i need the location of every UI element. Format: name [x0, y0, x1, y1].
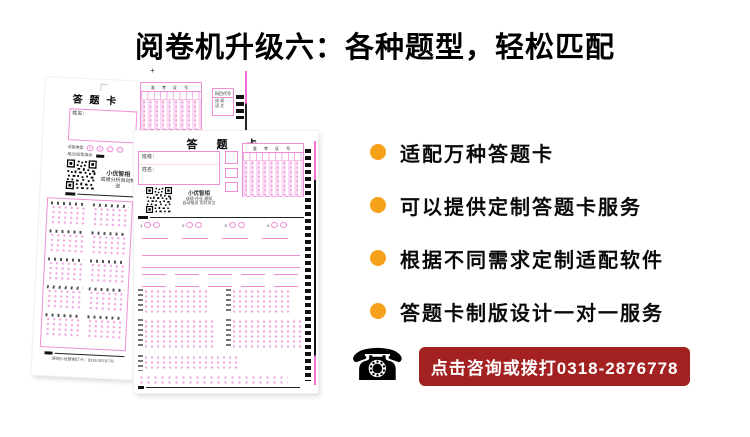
sheet-title: 答 题 卡: [45, 89, 147, 109]
bubble-block: [46, 285, 125, 313]
digit-write-row: [243, 153, 303, 161]
feature-text: 答题卡制版设计一对一服务: [400, 297, 664, 326]
fill-in-row: [142, 267, 298, 275]
option-bubble-b: B: [96, 146, 103, 152]
exam-number-label: 准 考 证 号: [243, 144, 303, 153]
bullet-dot-icon: [370, 144, 386, 160]
choice-group-row: [138, 375, 288, 385]
bullet-dot-icon: [370, 197, 386, 213]
bubble-block: [138, 355, 238, 371]
timing-mark: [65, 192, 75, 195]
contact-row: ☎ 点击咨询或拨打0318-2876778: [350, 344, 690, 388]
fill-in-row: [142, 279, 298, 287]
bullet-dot-icon: [370, 250, 386, 266]
subject-code-label: 科目代号: [213, 89, 233, 98]
promo-canvas: 阅卷机升级六：各种题型，轻松匹配 答 题 卡 姓名： 试卷类型 A B C D …: [0, 0, 750, 437]
option-bubble-c: C: [106, 146, 113, 152]
true-false-row: 1 2 3 4: [140, 222, 287, 228]
pencil-note-row: 用2B铅笔填涂: [67, 152, 104, 158]
name-box: 姓名：: [68, 108, 137, 143]
rule-line: [150, 217, 304, 218]
qr-code-icon: [66, 159, 97, 190]
consult-banner-button[interactable]: 点击咨询或拨打0318-2876778: [419, 347, 691, 386]
answer-sheet-main: 答 题 卡 班级： 姓名： 准 考 证 号 小优智相 成绩 作业 通知 自动推送…: [134, 131, 318, 393]
subject-code-box: 科目代号 成 绩 语 文: [212, 88, 234, 116]
digit-bubble-area: [243, 161, 303, 197]
paper-type-label: 试卷类型: [67, 145, 83, 150]
name-label: 姓名：: [72, 110, 87, 117]
fill-in-row: [142, 231, 288, 239]
bubble-answer-grid: [40, 197, 133, 351]
rule-line: [77, 194, 133, 198]
edge-line: [314, 141, 316, 385]
timing-mark-strip: [236, 95, 244, 119]
page-title: 阅卷机升级六：各种题型，轻松匹配: [0, 24, 750, 66]
timing-mark: [96, 154, 104, 157]
bubble-block: [50, 201, 129, 229]
qr-caption-line2: 成绩分析自动推送: [99, 177, 138, 191]
bubble-block: [226, 289, 292, 313]
bubble-block: [44, 313, 123, 341]
name-label: 姓名：: [139, 165, 219, 175]
feature-item: 适配万种答题卡: [370, 139, 664, 165]
qr-caption: 小优智相 成绩分析自动推送: [99, 168, 138, 191]
digit-bubble-area: [141, 100, 201, 130]
exam-number-label: 准 考 证 号: [141, 83, 201, 92]
rule-line: [146, 387, 300, 389]
subject-row: 语 文: [213, 104, 233, 108]
choice-block-row: [138, 319, 304, 349]
class-label: 班级：: [139, 152, 219, 165]
bubble-block: [226, 319, 304, 349]
qr-code-icon: [146, 187, 172, 213]
corner-registration-mark: [100, 84, 107, 91]
option-bubble-d: D: [116, 147, 123, 153]
plus-registration-mark: +: [150, 66, 155, 75]
exam-number-grid: 准 考 证 号: [242, 143, 304, 197]
marker-box: [225, 182, 238, 192]
feature-text: 适配万种答题卡: [400, 138, 554, 167]
exam-number-grid: 准 考 证 号: [140, 82, 202, 130]
marker-box: [225, 151, 238, 164]
feature-item: 可以提供定制答题卡服务: [370, 192, 664, 218]
edge-line: [245, 71, 247, 130]
timing-mark-strip: [305, 149, 311, 381]
qr-caption-line3: 自动推送 实时关注: [176, 201, 222, 205]
telephone-icon: ☎: [350, 344, 405, 388]
bubble-block: [138, 319, 216, 349]
feature-text: 根据不同需求定制适配软件: [400, 244, 664, 273]
footer-bar: [138, 386, 300, 389]
bubble-block: [138, 289, 210, 313]
calibration-bar: [138, 216, 304, 219]
timing-mark: [44, 351, 52, 354]
choice-block-row: [138, 355, 238, 371]
feature-list: 适配万种答题卡 可以提供定制答题卡服务 根据不同需求定制适配软件 答题卡制版设计…: [370, 139, 664, 351]
bubble-block: [47, 257, 126, 285]
marker-box: [225, 168, 238, 178]
digit-write-row: [141, 92, 201, 100]
bullet-dot-icon: [370, 303, 386, 319]
answer-sheet-left: 答 题 卡 姓名： 试卷类型 A B C D 用2B铅笔填涂 小优智相 成绩分析…: [31, 77, 146, 380]
student-info-box: 班级： 姓名：: [138, 151, 220, 185]
timing-mark: [138, 386, 144, 389]
bubble-block: [48, 229, 127, 257]
feature-item: 答题卡制版设计一对一服务: [370, 298, 664, 324]
choice-block-row: [138, 289, 292, 313]
calibration-bar: [65, 192, 133, 198]
option-bubble-a: A: [86, 145, 93, 151]
pencil-note: 用2B铅笔填涂: [67, 152, 92, 158]
qr-caption: 小优智相 成绩 作业 通知 自动推送 实时关注: [176, 189, 222, 206]
feature-text: 可以提供定制答题卡服务: [400, 191, 642, 220]
feature-item: 根据不同需求定制适配软件: [370, 245, 664, 271]
timing-mark: [138, 216, 148, 219]
answer-sheet-fragment: + 准 考 证 号 科目代号 成 绩 语 文: [138, 68, 248, 134]
